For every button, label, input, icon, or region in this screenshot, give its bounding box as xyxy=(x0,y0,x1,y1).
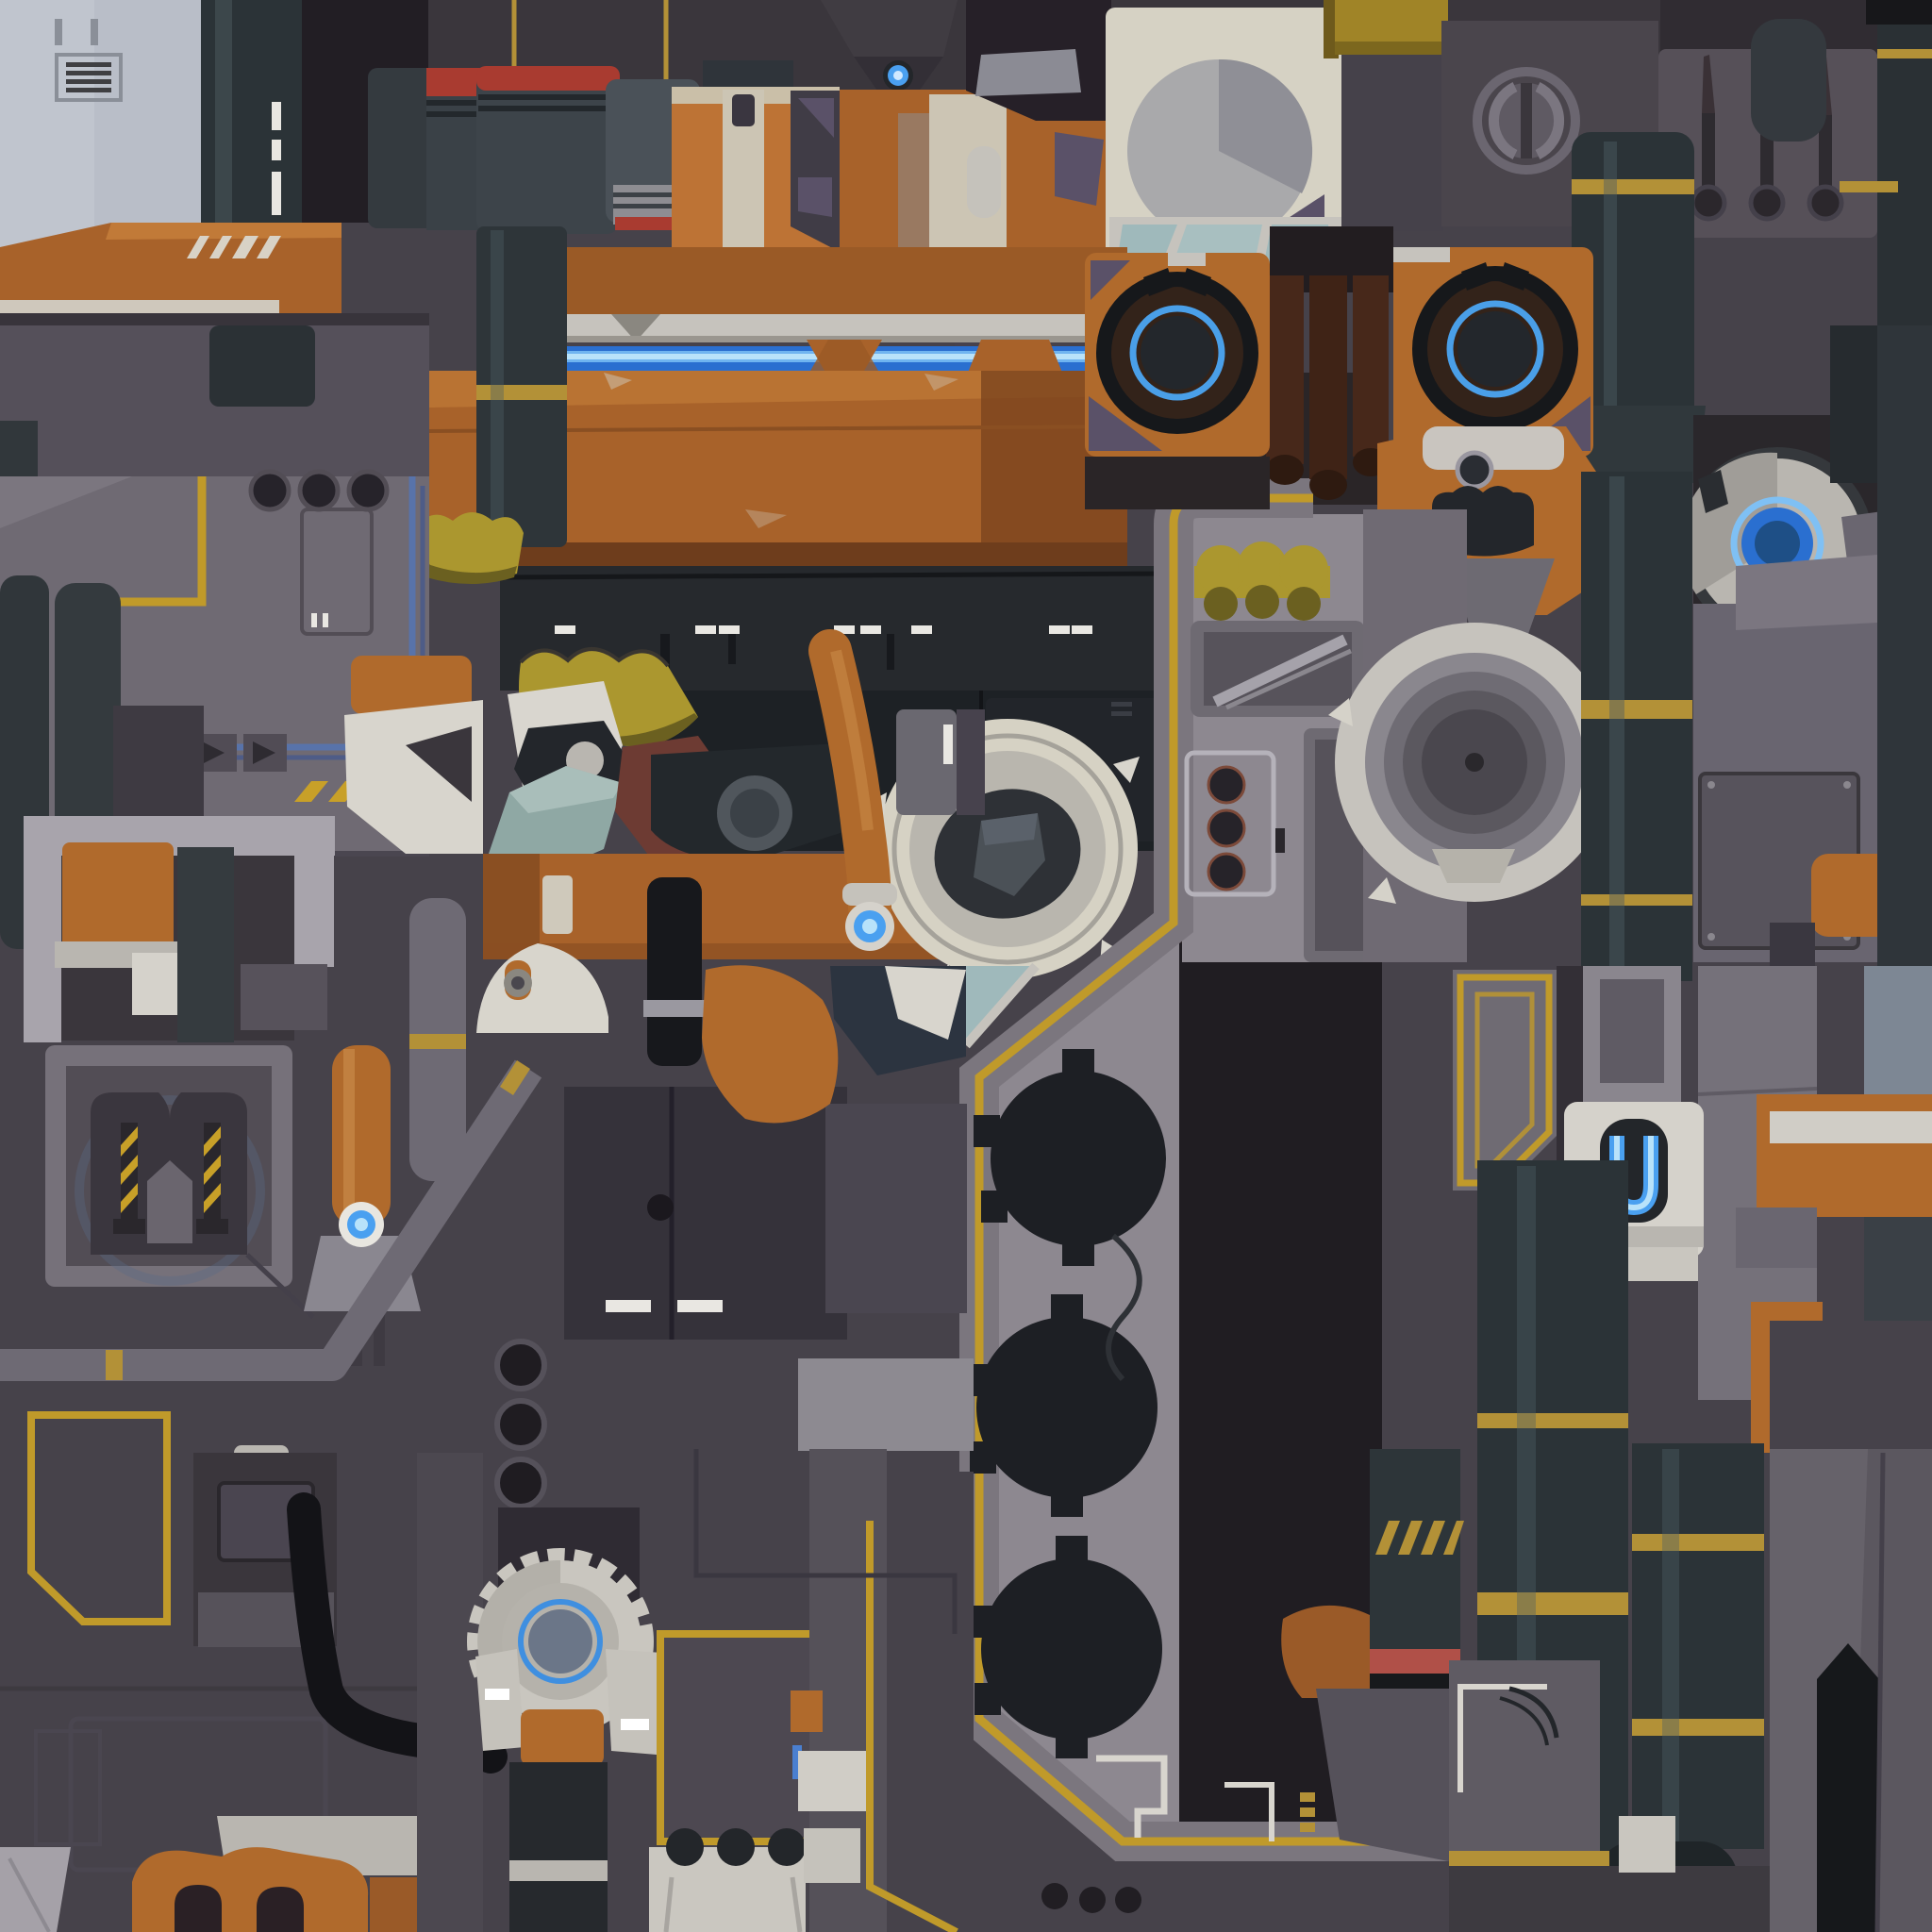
recessed-square-panel xyxy=(45,1045,313,1317)
texture-atlas-page xyxy=(0,0,1932,1932)
white-slab xyxy=(798,1751,866,1811)
right-edge-shadow xyxy=(1830,325,1877,483)
yellow-edge xyxy=(1449,1851,1609,1866)
gray-slab-left xyxy=(0,325,429,486)
gray-clamp xyxy=(896,709,985,815)
arch-frame xyxy=(24,816,335,1042)
collar-band xyxy=(975,49,1081,96)
lens-block-left xyxy=(1085,253,1270,457)
panel-holes xyxy=(251,472,387,509)
yellow-band xyxy=(1632,1719,1764,1736)
yellow-ring xyxy=(1877,49,1932,58)
orange-shelf xyxy=(476,247,1127,318)
white-dash xyxy=(606,1300,651,1312)
white-patch xyxy=(132,953,185,1015)
brown-pipe-bundle xyxy=(1266,275,1389,500)
keyhole xyxy=(647,1194,674,1221)
purple-plate-icon xyxy=(1055,132,1104,206)
drop-pipe xyxy=(509,1762,608,1932)
yellow-band xyxy=(106,1350,123,1380)
light-slab xyxy=(798,1358,974,1451)
red-cap xyxy=(426,68,483,96)
purple-plate-icon xyxy=(798,177,832,217)
yellow-band xyxy=(409,1034,466,1049)
lens-core xyxy=(1141,316,1214,390)
orange-knuckle xyxy=(1281,1606,1379,1698)
white-dash xyxy=(677,1300,723,1312)
slot xyxy=(732,94,755,126)
white-patch xyxy=(1619,1816,1675,1873)
arch-hole xyxy=(257,1887,304,1932)
white-tab xyxy=(542,875,573,934)
red-ring xyxy=(476,66,620,91)
orange-collar xyxy=(521,1709,604,1766)
dark-pipe xyxy=(177,847,234,1042)
right-edge-pipe xyxy=(1877,325,1932,967)
orange-hazard-beam xyxy=(0,223,341,313)
charcoal-cabinet xyxy=(564,1087,967,1340)
black-pipe-collar xyxy=(643,877,706,1066)
vertical-pipe-a xyxy=(409,898,466,1181)
brass-pipe xyxy=(1324,0,1448,58)
left-drop-pipe xyxy=(476,226,567,547)
dark-column xyxy=(417,1453,483,1932)
yellow-band xyxy=(1581,894,1692,906)
peephole xyxy=(1457,453,1491,487)
under-lens-shadow xyxy=(1085,457,1270,509)
cylinder-pair-topleft xyxy=(368,68,483,230)
big-pipe-right xyxy=(1581,472,1692,981)
orange-block xyxy=(62,842,174,950)
silver-collar xyxy=(643,1000,706,1017)
red-band xyxy=(1370,1649,1460,1674)
slate-wedge xyxy=(791,91,841,253)
yellow-ring xyxy=(1840,181,1898,192)
silver-cap xyxy=(1423,426,1564,470)
yellow-band xyxy=(1572,179,1694,194)
leg-slot xyxy=(1817,1643,1879,1932)
silver-band xyxy=(509,1860,608,1881)
pipe-dash-marks xyxy=(272,102,281,215)
texture-atlas xyxy=(0,0,1932,1932)
canister-group xyxy=(476,66,700,234)
yellow-band xyxy=(476,385,567,400)
arch-hole xyxy=(175,1885,222,1932)
yellow-band xyxy=(1477,1592,1628,1615)
energy-rail xyxy=(509,314,1127,342)
white-slab xyxy=(804,1828,860,1883)
side-bracket xyxy=(606,1649,662,1755)
leg-column xyxy=(1770,1321,1932,1932)
gold-scallop-small xyxy=(415,512,524,584)
lens-core xyxy=(1457,311,1533,387)
capsule-greeble xyxy=(967,146,1001,218)
triple-bump-bracket xyxy=(649,1828,806,1932)
yellow-band xyxy=(1632,1534,1764,1551)
bolt-hole-column xyxy=(497,1341,544,1507)
yellow-band xyxy=(1477,1413,1628,1428)
lens-block-right xyxy=(1393,247,1593,457)
yellow-band xyxy=(1581,700,1692,719)
pipe-hump xyxy=(209,325,315,407)
beam-shadow xyxy=(0,313,429,326)
right-machinery xyxy=(1693,555,1898,966)
